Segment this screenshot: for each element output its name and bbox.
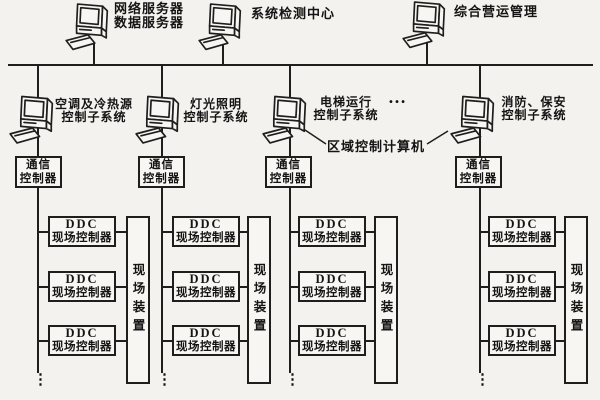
ddc-stub-line [163, 231, 172, 233]
device-stub-line [366, 231, 374, 233]
subsystem-label-line: 控制子系统 [494, 109, 574, 122]
ddc-controller-box: DDC 现场控制器 [488, 325, 556, 356]
ddc-box-line2: 现场控制器 [52, 232, 112, 246]
comm-controller-label-line: 控制器 [143, 172, 181, 186]
ddc-controller-box: DDC 现场控制器 [488, 216, 556, 247]
server-label-line: 综合营运管理 [454, 5, 538, 19]
computer-icon [197, 2, 243, 52]
ddc-box-line1: DDC [189, 217, 222, 231]
ddc-box-line1: DDC [505, 217, 538, 231]
field-device-box: 现场装置 [374, 216, 398, 384]
ddc-box-line1: DDC [505, 326, 538, 340]
ddc-box-line1: DDC [189, 326, 222, 340]
server-label-line: 网络服务器 [114, 2, 184, 16]
ddc-box-line1: DDC [505, 272, 538, 286]
ddc-box-line2: 现场控制器 [52, 287, 112, 301]
computer-icon [64, 2, 110, 52]
computer-icon [8, 94, 55, 146]
field-device-label: 现场装置 [129, 263, 148, 337]
ddc-stub-line [291, 286, 298, 288]
device-stub-line [556, 340, 564, 342]
ellipsis-horizontal: … [388, 88, 406, 106]
device-stub-line [366, 340, 374, 342]
ddc-stub-line [481, 231, 488, 233]
ddc-stub-line [39, 231, 48, 233]
subsystem-label: 空调及冷热源 控制子系统 [50, 98, 138, 124]
device-stub-line [116, 231, 126, 233]
ddc-controller-box: DDC 现场控制器 [172, 271, 240, 302]
comm-controller-label-line: 通信 [466, 158, 491, 172]
ddc-controller-box: DDC 现场控制器 [488, 271, 556, 302]
computer-icon [449, 94, 496, 146]
ddc-box-line1: DDC [315, 272, 348, 286]
server-label: 系统检测中心 [251, 7, 335, 21]
subsystem-label-line: 控制子系统 [50, 111, 138, 124]
ddc-box-line2: 现场控制器 [176, 341, 236, 355]
ddc-box-line1: DDC [315, 217, 348, 231]
area-computer-label: 区域控制计算机 [327, 140, 425, 154]
ddc-stub-line [39, 340, 48, 342]
comm-controller-label-line: 通信 [26, 158, 51, 172]
ddc-box-line1: DDC [65, 272, 98, 286]
device-stub-line [116, 340, 126, 342]
comm-controller-label-line: 通信 [276, 158, 301, 172]
comm-controller-box: 通信 控制器 [265, 156, 312, 188]
device-stub-line [240, 231, 247, 233]
diagram-canvas: 网络服务器 数据服务器 系统检测中心 综合营运管理 空调及冷热源 控制子系统 灯… [0, 0, 600, 400]
computer-icon [134, 94, 181, 146]
comm-controller-label-line: 控制器 [20, 172, 58, 186]
ddc-stub-line [481, 286, 488, 288]
server-label-line: 系统检测中心 [251, 7, 335, 21]
field-device-label: 现场装置 [567, 263, 586, 337]
ddc-stub-line [163, 340, 172, 342]
ddc-stub-line [163, 286, 172, 288]
ellipsis-vertical: ⋮ [33, 373, 48, 388]
comm-controller-box: 通信 控制器 [455, 156, 502, 188]
ddc-box-line2: 现场控制器 [176, 287, 236, 301]
ddc-box-line2: 现场控制器 [176, 232, 236, 246]
main-bus-line [8, 64, 593, 66]
ellipsis-vertical: ⋮ [475, 373, 490, 388]
computer-icon [401, 0, 447, 50]
ddc-stub-line [291, 340, 298, 342]
ddc-controller-box: DDC 现场控制器 [48, 271, 116, 302]
field-device-box: 现场装置 [126, 216, 150, 384]
subsystem-label: 电梯运行 控制子系统 [308, 96, 384, 122]
device-stub-line [240, 286, 247, 288]
comm-controller-label-line: 控制器 [460, 172, 498, 186]
computer-icon [261, 94, 308, 146]
ellipsis-vertical: ⋮ [285, 373, 300, 388]
ddc-box-line2: 现场控制器 [492, 232, 552, 246]
ddc-stub-line [39, 286, 48, 288]
subsystem-label: 灯光照明 控制子系统 [178, 98, 254, 124]
ddc-box-line1: DDC [315, 326, 348, 340]
ddc-box-line1: DDC [65, 326, 98, 340]
ddc-controller-box: DDC 现场控制器 [172, 216, 240, 247]
field-device-label: 现场装置 [377, 263, 396, 337]
comm-controller-box: 通信 控制器 [138, 156, 185, 188]
server-label: 网络服务器 数据服务器 [114, 2, 184, 31]
ddc-box-line1: DDC [189, 272, 222, 286]
ddc-controller-box: DDC 现场控制器 [48, 325, 116, 356]
subsystem-label-line: 控制子系统 [178, 111, 254, 124]
ddc-controller-box: DDC 现场控制器 [172, 325, 240, 356]
field-device-label: 现场装置 [250, 263, 269, 337]
ddc-stub-line [481, 340, 488, 342]
field-device-box: 现场装置 [247, 216, 271, 384]
ddc-box-line2: 现场控制器 [52, 341, 112, 355]
ddc-controller-box: DDC 现场控制器 [48, 216, 116, 247]
device-stub-line [116, 286, 126, 288]
comm-controller-box: 通信 控制器 [15, 156, 62, 188]
ddc-box-line2: 现场控制器 [302, 287, 362, 301]
ddc-box-line2: 现场控制器 [492, 287, 552, 301]
ddc-box-line2: 现场控制器 [302, 341, 362, 355]
subsystem-label-line: 控制子系统 [308, 109, 384, 122]
ddc-box-line2: 现场控制器 [492, 341, 552, 355]
ddc-box-line1: DDC [65, 217, 98, 231]
device-stub-line [366, 286, 374, 288]
ddc-box-line2: 现场控制器 [302, 232, 362, 246]
comm-controller-label-line: 通信 [149, 158, 174, 172]
comm-controller-label-line: 控制器 [270, 172, 308, 186]
subsystem-label: 消防、保安 控制子系统 [494, 96, 574, 122]
server-label-line: 数据服务器 [114, 16, 184, 30]
device-stub-line [556, 231, 564, 233]
ddc-stub-line [291, 231, 298, 233]
ddc-controller-box: DDC 现场控制器 [298, 216, 366, 247]
field-device-box: 现场装置 [564, 216, 588, 384]
ellipsis-vertical: ⋮ [157, 373, 172, 388]
device-stub-line [556, 286, 564, 288]
ddc-controller-box: DDC 现场控制器 [298, 271, 366, 302]
device-stub-line [240, 340, 247, 342]
server-label: 综合营运管理 [454, 5, 538, 19]
ddc-controller-box: DDC 现场控制器 [298, 325, 366, 356]
